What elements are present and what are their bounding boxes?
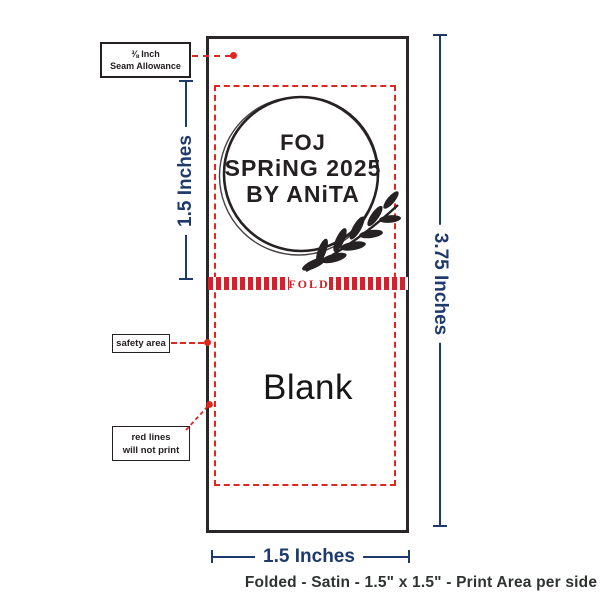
seam-allowance-line-2: Seam Allowance [110,60,181,72]
seam-allowance-line-1: ⅜ Inch [131,48,160,60]
footer-caption: Folded - Satin - 1.5" x 1.5" - Print Are… [245,574,597,592]
fold-label: FOLD [289,276,329,292]
right-dimension-cap-top [433,34,447,36]
bottom-dimension-cap-left [211,550,213,563]
design-line-1: FOJ [218,130,388,155]
safety-area-callout: safety area [112,334,170,353]
seam-leader-line [192,55,231,57]
design-line-3: BY ANiTA [218,181,388,207]
red-lines-leader-line [180,398,218,436]
red-lines-callout: red lines will not print [112,426,190,461]
right-dimension-cap-bottom [433,525,447,527]
left-dimension-cap-bottom [179,278,193,280]
front-design-text: FOJ SPRiNG 2025 BY ANiTA [218,130,388,207]
back-side-text: Blank [263,368,353,408]
seam-arrow-dot [230,52,237,59]
left-dimension-label: 1.5 Inches [173,127,199,235]
safety-leader-line [171,342,204,344]
red-lines-line-2: will not print [123,444,179,457]
seam-allowance-callout: ⅜ Inch Seam Allowance [100,42,191,78]
red-lines-line-1: red lines [131,431,170,444]
safety-arrow-dot [204,339,211,346]
design-line-2: SPRiNG 2025 [218,155,388,181]
right-dimension-label: 3.75 Inches [427,225,453,343]
safety-area-label: safety area [116,338,166,349]
bottom-dimension-cap-right [408,550,410,563]
left-dimension-cap-top [179,80,193,82]
bottom-dimension-label: 1.5 Inches [255,544,363,570]
label-proof-diagram: FOJ SPRiNG 2025 BY ANiTA FOLD Blank ⅜ In… [0,0,600,600]
